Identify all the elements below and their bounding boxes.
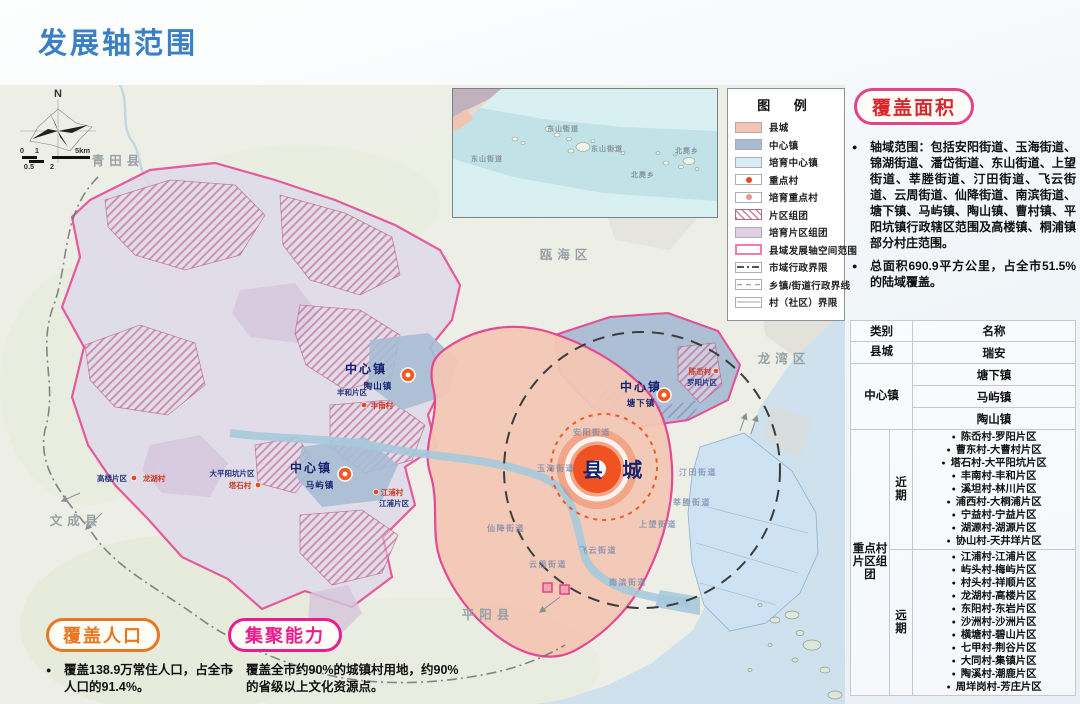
legend-label: 中心镇: [769, 138, 798, 152]
map-label: 莘塍街道: [673, 497, 711, 507]
cluster-item: ●曹东村-大曹村片区: [913, 444, 1075, 457]
map-label: 县 城: [583, 458, 650, 482]
legend-item: 乡镇/街道行政界线: [735, 278, 837, 292]
coverage-area-bullet: 总面积690.9平方公里，占全市51.5%的陆域覆盖。: [850, 258, 1076, 290]
legend-label: 培育片区组团: [769, 225, 828, 239]
map-label: 龙湾区: [757, 351, 811, 366]
village-dot: [373, 489, 379, 495]
legend-item: 县城: [735, 120, 837, 134]
map-label: 1: [35, 146, 39, 155]
legend-label: 乡镇/街道行政界线: [769, 278, 850, 292]
category-table: 类别名称县城瑞安中心镇塘下镇马屿镇陶山镇重点村片区组团近期●陈岙村-罗阳片区●曹…: [850, 320, 1076, 696]
legend-item: 培育中心镇: [735, 155, 837, 169]
village-dot: [255, 482, 261, 488]
right-panel: 覆盖面积 轴域范围：包括安阳街道、玉海街道、锦湖街道、潘岱街道、东山街道、上望街…: [850, 88, 1076, 702]
village-dot: [662, 393, 667, 398]
legend-swatch-dashdot: [735, 262, 762, 273]
map-label: 中心镇: [345, 361, 387, 376]
agglomeration-block: 集聚能力 覆盖全市约90%的城镇村用地，约90%的省级以上文化资源点。: [228, 618, 466, 696]
cluster-item: ●协山村-天井垟片区: [913, 535, 1075, 548]
table-row: 重点村片区组团近期●陈岙村-罗阳片区●曹东村-大曹村片区●塔石村-大平阳坑片区●…: [851, 430, 1076, 550]
legend-swatch-dot: [735, 174, 762, 185]
coverage-population-text: 覆盖138.9万常住人口，占全市人口的91.4%。: [46, 662, 234, 696]
legend-swatch-hatch: [735, 209, 762, 220]
page-title: 发展轴范围: [38, 20, 198, 62]
legend-label: 片区组团: [769, 208, 808, 222]
map-label: 南滨街道: [609, 577, 647, 587]
legend-swatch-thin: [735, 297, 762, 308]
map-label: 龙湖村: [143, 473, 166, 483]
map-label: 中心镇: [290, 460, 332, 475]
legend-swatch-fill: [735, 139, 762, 150]
map-label: 塔石村: [229, 480, 252, 490]
map-label: 瓯海区: [540, 247, 593, 262]
map-label: 北麂乡: [675, 146, 699, 155]
village-dot: [361, 402, 367, 408]
legend-label: 村（社区）界限: [769, 295, 838, 309]
cluster-item: ●江浦村-江浦片区: [913, 551, 1075, 564]
legend-item: 片区组团: [735, 208, 837, 222]
map-label: 塘下镇: [627, 398, 656, 408]
map-label: 陶山镇: [364, 381, 393, 391]
legend-swatch-fill: [735, 227, 762, 238]
legend-item: 县域发展轴空间范围: [735, 243, 837, 257]
cluster-item: ●龙湖村-高楼片区: [913, 590, 1075, 603]
map-label: 罗阳片区: [687, 377, 717, 387]
map-label: 2: [50, 162, 54, 171]
legend-label: 市域行政界限: [769, 260, 828, 274]
cluster-item: ●屿头村-梅屿片区: [913, 564, 1075, 577]
map-label: 东山街道: [471, 154, 503, 163]
map-label: 东山街道: [591, 144, 623, 153]
cluster-item: ●大同村-集镇片区: [913, 655, 1075, 668]
inset-map: 东山街道东山街道东山街道北麂乡北麂乡: [452, 88, 718, 218]
coverage-area-badge: 覆盖面积: [854, 88, 974, 125]
map-label: 中心镇: [620, 379, 662, 394]
legend-item: 培育重点村: [735, 190, 837, 204]
map-label: 玉海街道: [537, 463, 575, 473]
table-header-row: 类别名称: [851, 321, 1076, 342]
legend-label: 县城: [769, 120, 789, 134]
table-row: 中心镇塘下镇: [851, 364, 1076, 386]
coverage-area-bullet: 轴域范围：包括安阳街道、玉海街道、锦湖街道、潘岱街道、东山街道、上望街道、莘塍街…: [850, 139, 1076, 251]
legend-label: 培育中心镇: [769, 155, 818, 169]
cluster-item: ●村头村-祥顺片区: [913, 577, 1075, 590]
map-label: 0: [20, 146, 24, 155]
village-dot: [131, 475, 137, 481]
map-label: 大平阳坑片区: [210, 468, 255, 478]
slide: 发展轴范围: [0, 0, 1080, 704]
map-label: 陈岙村: [689, 366, 712, 376]
map-label: 上望街道: [639, 519, 677, 529]
cluster-item: ●湖源村-湖源片区: [913, 522, 1075, 535]
cluster-item: ●东阳村-东岩片区: [913, 603, 1075, 616]
cluster-item: ●宁益村-宁益片区: [913, 509, 1075, 522]
legend-swatch-fill: [735, 122, 762, 133]
cluster-item: ●周垟岗村-芳庄片区: [913, 681, 1075, 694]
agglomeration-text: 覆盖全市约90%的城镇村用地，约90%的省级以上文化资源点。: [228, 662, 466, 696]
map-canvas: 青田县瓯海区龙湾区文成县平阳县安阳街道玉海街道汀田街道莘塍街道上望街道飞云街道云…: [0, 85, 845, 704]
map-label: 丰南村: [371, 400, 394, 410]
inset-canvas: 东山街道东山街道东山街道北麂乡北麂乡: [453, 89, 717, 217]
map-label: 北麂乡: [631, 170, 655, 179]
map-label: 江浦片区: [379, 498, 409, 508]
table-row: 县城瑞安: [851, 342, 1076, 364]
legend-item: 中心镇: [735, 138, 837, 152]
cluster-item: ●丰南村-丰和片区: [913, 470, 1075, 483]
map-legend: 图 例 县城中心镇培育中心镇重点村培育重点村片区组团培育片区组团县域发展轴空间范…: [727, 88, 845, 321]
village-dot: [406, 373, 411, 378]
cluster-item: ●沙洲村-沙洲片区: [913, 616, 1075, 629]
village-dot: [713, 368, 719, 374]
legend-title: 图 例: [737, 95, 837, 114]
map-label: 汀田街道: [679, 467, 717, 477]
map-label: 飞云街道: [579, 545, 617, 555]
map-label: 仙降街道: [487, 523, 525, 533]
map-label: 东山街道: [547, 124, 579, 133]
col-category: 类别: [851, 321, 913, 342]
cluster-item: ●陶溪村-潮鹿片区: [913, 668, 1075, 681]
cluster-item: ●七甲村-荆谷片区: [913, 642, 1075, 655]
legend-label: 培育重点村: [769, 190, 818, 204]
map-label: 平阳县: [462, 607, 515, 622]
map-label: 江浦村: [381, 487, 404, 497]
legend-label: 县域发展轴空间范围: [769, 243, 857, 257]
map-label: 5km: [75, 146, 90, 155]
map-label: N: [54, 88, 62, 100]
legend-rows: 县城中心镇培育中心镇重点村培育重点村片区组团培育片区组团县域发展轴空间范围市域行…: [735, 120, 837, 309]
cluster-item: ●塔石村-大平阳坑片区: [913, 457, 1075, 470]
map-label: 马屿镇: [306, 480, 335, 490]
cluster-item: ●浦西村-大桐浦片区: [913, 496, 1075, 509]
legend-swatch-outline: [735, 244, 762, 255]
cluster-item: ●横塘村-碧山片区: [913, 629, 1075, 642]
legend-item: 培育片区组团: [735, 225, 837, 239]
map-label: 文成县: [50, 513, 103, 528]
col-name: 名称: [913, 321, 1076, 342]
cluster-item: ●溪坦村-林川片区: [913, 483, 1075, 496]
cluster-item: ●陈岙村-罗阳片区: [913, 431, 1075, 444]
coverage-population-badge: 覆盖人口: [46, 618, 160, 652]
legend-swatch-fill: [735, 157, 762, 168]
legend-item: 重点村: [735, 173, 837, 187]
legend-label: 重点村: [769, 173, 798, 187]
legend-swatch-dot: [735, 192, 762, 203]
village-dot: [343, 472, 348, 477]
map-label: 高楼片区: [97, 473, 127, 483]
agglomeration-badge: 集聚能力: [228, 618, 342, 652]
legend-swatch-dashed: [735, 279, 762, 290]
map-label: 青田县: [92, 153, 145, 168]
map-label: 丰和片区: [337, 387, 367, 397]
coverage-population-block: 覆盖人口 覆盖138.9万常住人口，占全市人口的91.4%。: [46, 618, 234, 696]
legend-item: 村（社区）界限: [735, 295, 837, 309]
coverage-area-bullets: 轴域范围：包括安阳街道、玉海街道、锦湖街道、潘岱街道、东山街道、上望街道、莘塍街…: [850, 139, 1076, 290]
map-label: 0.5: [24, 162, 34, 171]
map-label: 安阳街道: [573, 427, 611, 437]
map-label: 云周街道: [529, 559, 567, 569]
legend-item: 市域行政界限: [735, 260, 837, 274]
